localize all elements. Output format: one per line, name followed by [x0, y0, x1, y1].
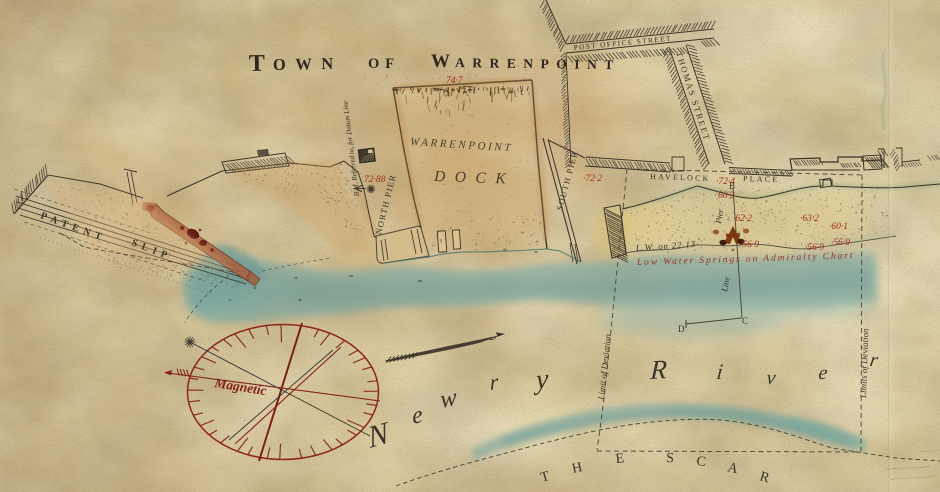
svg-text:OF: OF: [368, 56, 400, 72]
svg-text:·62·2: ·62·2: [733, 214, 752, 224]
svg-text:y: y: [533, 364, 549, 397]
svg-text:60·3: 60·3: [718, 191, 735, 201]
svg-text:ARRENPOINT: ARRENPOINT: [455, 55, 621, 72]
svg-text:DOCK: DOCK: [433, 168, 516, 188]
svg-text:W: W: [431, 51, 450, 72]
svg-text:·63·2: ·63·2: [800, 214, 819, 224]
svg-text:T: T: [249, 51, 265, 77]
svg-text:R: R: [649, 354, 669, 385]
svg-text:·72·2: ·72·2: [583, 174, 602, 184]
svg-text:D: D: [678, 324, 685, 334]
svg-text:E: E: [615, 451, 625, 467]
svg-text:r: r: [489, 369, 499, 395]
svg-text:72·88: 72·88: [364, 175, 386, 185]
svg-text:PLACE: PLACE: [743, 174, 780, 184]
svg-text:·56·9: ·56·9: [831, 238, 850, 248]
svg-text:S: S: [666, 451, 674, 466]
svg-text:OWN: OWN: [273, 54, 343, 74]
svg-text:B: B: [729, 181, 735, 191]
svg-text:74·7: 74·7: [446, 76, 464, 86]
svg-text:·60·1: ·60·1: [829, 222, 848, 232]
svg-text:w: w: [439, 384, 458, 414]
svg-text:C: C: [742, 316, 748, 326]
svg-text:·56·9: ·56·9: [740, 240, 759, 250]
